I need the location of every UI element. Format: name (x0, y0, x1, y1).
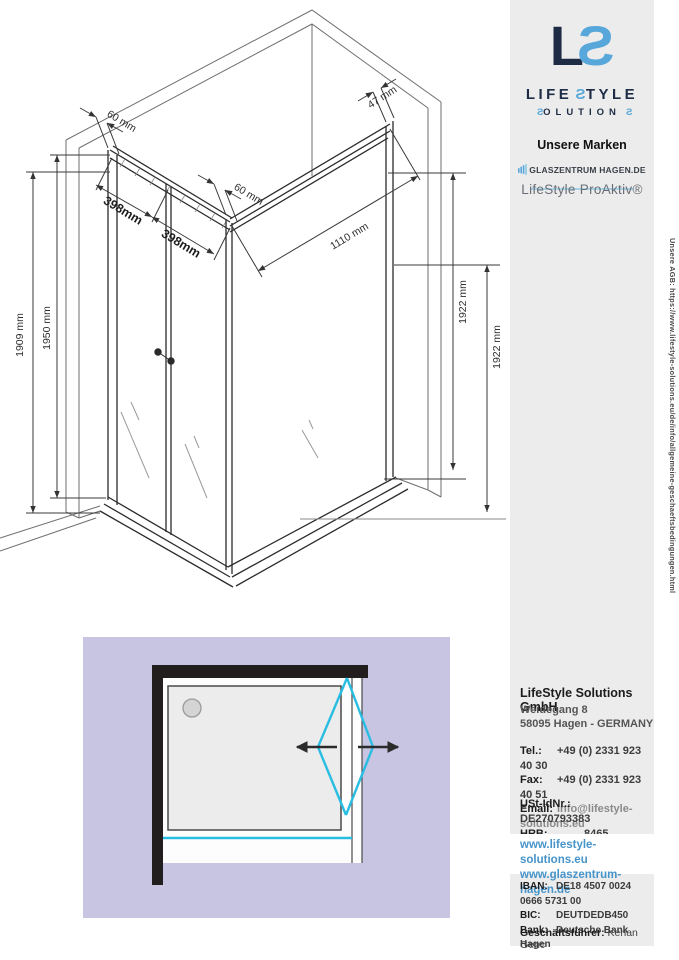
ceo-label: Geschäftsführer: (520, 927, 605, 939)
room-walls (0, 10, 441, 551)
brand-proaktiv: LifeStyle ProAktiv® (510, 182, 654, 197)
logo-word2-s2: S (621, 107, 632, 118)
side-bottom-rail (228, 477, 408, 586)
logo-letter-s-icon: S (577, 14, 614, 78)
brands-heading: Unsere Marken (510, 138, 654, 152)
link-lifestyle-site[interactable]: www.lifestyle-solutions.eu (520, 839, 596, 866)
shower-isometric-drawing: 60 mm 60 mm 398mm 398mm 47 mm 1110 mm 19… (0, 0, 512, 620)
glaszentrum-icon (518, 164, 527, 175)
logo-wordmark-lifestyle: LIFESTYLE (510, 86, 654, 103)
logo-word-post: TYLE (586, 86, 638, 103)
dim-1950: 1950 mm (41, 306, 53, 350)
lifestyle-logo-mark: LS (510, 14, 654, 78)
side-wall-profile (386, 121, 393, 481)
bic-label: BIC: (520, 909, 556, 924)
side-panel-top-rail (230, 124, 390, 232)
company-address: Weidegang 8 58095 Hagen - GERMANY (510, 703, 654, 731)
page: { "drawing": { "labels": { "d60_left": "… (0, 0, 679, 960)
dim-1909: 1909 mm (14, 313, 26, 357)
info-sidebar: LS LIFESTYLE SOLUTIONS Unsere Marken GLA… (510, 0, 679, 960)
bic-row: BIC:DEUTDEDB450 (520, 909, 654, 924)
logo-wordmark-solutions: SOLUTIONS (510, 107, 654, 118)
ustid-label: USt-IdNr.: (520, 797, 584, 812)
tel-row: Tel.:+49 (0) 2331 923 40 30 (520, 744, 654, 773)
shower-top-view (83, 637, 450, 918)
logo-word-pre: LIFE (526, 86, 573, 103)
dim-47: 47 mm (366, 84, 400, 112)
logo-word2-s1: S (532, 107, 543, 118)
wall-top (152, 665, 368, 678)
tel-label: Tel.: (520, 744, 557, 759)
logo-word-s: S (572, 86, 586, 103)
drain-icon (183, 699, 201, 717)
brand-glaszentrum-label: GLASZENTRUM HAGEN.DE (529, 165, 645, 175)
wall-left (152, 665, 163, 885)
bic-value: DEUTDEDB450 (556, 910, 628, 921)
glass-reflections (121, 402, 318, 498)
company-street: Weidegang 8 (520, 703, 654, 717)
ustid-row: USt-IdNr.:DE270793383 (520, 797, 654, 827)
agb-vertical-text: Unsere AGB: https://www.lifestyle-soluti… (657, 238, 677, 658)
iban-row: IBAN:DE18 4507 0024 0666 5731 00 (520, 880, 654, 909)
fax-label: Fax: (520, 773, 557, 788)
ceo-row: Geschäftsführer: Kenan Genc (510, 927, 654, 951)
ustid-value: DE270793383 (520, 813, 590, 825)
dimension-labels: 60 mm 60 mm 398mm 398mm 47 mm 1110 mm 19… (14, 84, 503, 369)
dim-60-right: 60 mm (232, 181, 266, 208)
dimension-lines (26, 79, 506, 519)
dim-1922-front: 1922 mm (457, 280, 469, 324)
company-city: 58095 Hagen - GERMANY (520, 717, 654, 731)
logo-word2-mid: OLUTION (543, 107, 621, 118)
corner-post (226, 219, 232, 574)
iban-label: IBAN: (520, 880, 556, 895)
top-view-svg (83, 637, 450, 918)
brand-glaszentrum: GLASZENTRUM HAGEN.DE (510, 164, 654, 175)
dim-1922-wall: 1922 mm (491, 325, 503, 369)
isometric-svg: 60 mm 60 mm 398mm 398mm 47 mm 1110 mm 19… (0, 0, 512, 620)
